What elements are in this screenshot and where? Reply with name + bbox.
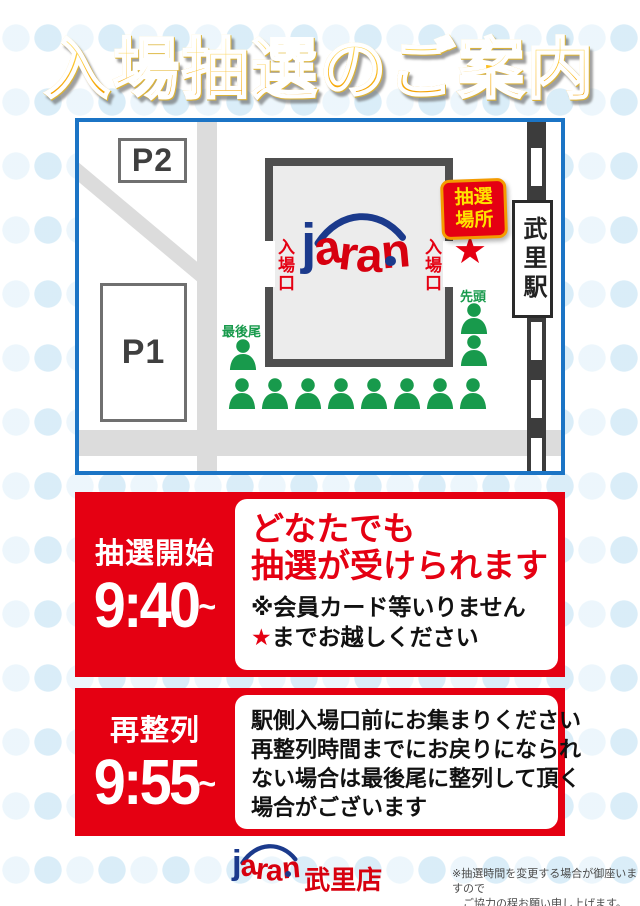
disclaimer-line2: ご協力の程お願い申し上げます。 xyxy=(452,897,640,906)
lottery-place-badge: 抽選 場所 xyxy=(440,178,508,240)
logo-letter-n: n xyxy=(379,227,412,277)
headline-line2: 抽選が受けられます xyxy=(251,548,550,585)
location-map: P2 P1 武里駅 入場口 入場口 j a r a n 抽選 場所 ★ 先頭 最… xyxy=(75,118,565,475)
queue-right-column xyxy=(459,303,489,366)
queue-person-icon xyxy=(459,335,489,366)
queue-person-icon xyxy=(425,378,455,409)
logo-letter-n: n xyxy=(281,853,302,884)
parking-p2-label: P2 xyxy=(132,142,173,179)
parking-p1: P1 xyxy=(100,283,187,422)
queue-person-icon xyxy=(359,378,389,409)
station-box: 武里駅 xyxy=(512,200,553,318)
queue-bottom-row xyxy=(227,378,488,409)
star-icon: ★ xyxy=(251,624,272,650)
relineup-time: 9:55~ xyxy=(94,749,216,816)
tilde: ~ xyxy=(198,767,216,803)
queue-person-icon xyxy=(227,378,257,409)
entrance-label-right: 入場口 xyxy=(423,238,440,292)
relineup-panel: 再整列 9:55~ 駅側入場口前にお集まりください 再整列時間までにお戻りになら… xyxy=(75,688,565,836)
page-title: 入場抽選のご案内 xyxy=(0,16,640,112)
lottery-place-line1: 抽選 xyxy=(443,185,504,210)
queue-person-icon xyxy=(392,378,422,409)
road-horizontal xyxy=(79,430,561,456)
queue-person-icon xyxy=(326,378,356,409)
relineup-time-block: 再整列 9:55~ xyxy=(75,688,235,836)
lottery-start-description: どなたでも 抽選が受けられます ※会員カード等いりません ★までお越しください xyxy=(235,499,558,670)
relineup-label: 再整列 xyxy=(110,707,200,749)
jaran-logo-footer: j a r a n xyxy=(232,851,300,886)
lottery-start-time-block: 抽選開始 9:40~ xyxy=(75,492,235,677)
queue-back-label: 最後尾 xyxy=(222,321,261,340)
queue-person-icon xyxy=(228,339,258,370)
poster: 入場抽選のご案内 P2 P1 武里駅 入場口 入場口 j a r a n 抽選 … xyxy=(0,0,640,906)
parking-p1-label: P1 xyxy=(122,333,166,372)
entrance-door-left xyxy=(263,241,275,287)
store-name: 武里店 xyxy=(304,860,382,897)
jaran-logo-map: j a r a n xyxy=(301,224,410,279)
note-no-card: ※会員カード等いりません xyxy=(251,592,550,622)
lottery-start-label: 抽選開始 xyxy=(95,530,215,572)
parking-p2: P2 xyxy=(118,138,187,183)
lottery-start-panel: 抽選開始 9:40~ どなたでも 抽選が受けられます ※会員カード等いりません … xyxy=(75,492,565,677)
queue-person-icon xyxy=(458,378,488,409)
headline-line1: どなたでも xyxy=(251,511,550,548)
disclaimer-line1: ※抽選時間を変更する場合が御座いますので xyxy=(452,867,640,897)
note-come-to-star: ★までお越しください xyxy=(251,622,550,652)
entrance-label-left: 入場口 xyxy=(276,238,293,292)
relineup-description: 駅側入場口前にお集まりください 再整列時間までにお戻りになられ ない場合は最後尾… xyxy=(235,695,558,829)
footer-store-logo: j a r a n 武里店 xyxy=(232,851,382,897)
queue-person-icon xyxy=(260,378,290,409)
relineup-line4: 場合がございます xyxy=(251,793,550,822)
logo-a-dot xyxy=(385,256,396,267)
queue-back-person xyxy=(228,339,258,370)
relineup-line2: 再整列時間までにお戻りになられ xyxy=(251,735,550,764)
lottery-place-line2: 場所 xyxy=(444,208,505,233)
queue-person-icon xyxy=(293,378,323,409)
queue-person-icon xyxy=(459,303,489,334)
relineup-line1: 駅側入場口前にお集まりください xyxy=(251,706,550,735)
relineup-line3: ない場合は最後尾に整列して頂く xyxy=(251,764,550,793)
footer-disclaimer: ※抽選時間を変更する場合が御座いますので ご協力の程お願い申し上げます。 xyxy=(452,867,640,906)
tilde: ~ xyxy=(198,590,216,626)
road-vertical xyxy=(197,122,217,471)
lottery-start-time: 9:40~ xyxy=(94,572,216,639)
